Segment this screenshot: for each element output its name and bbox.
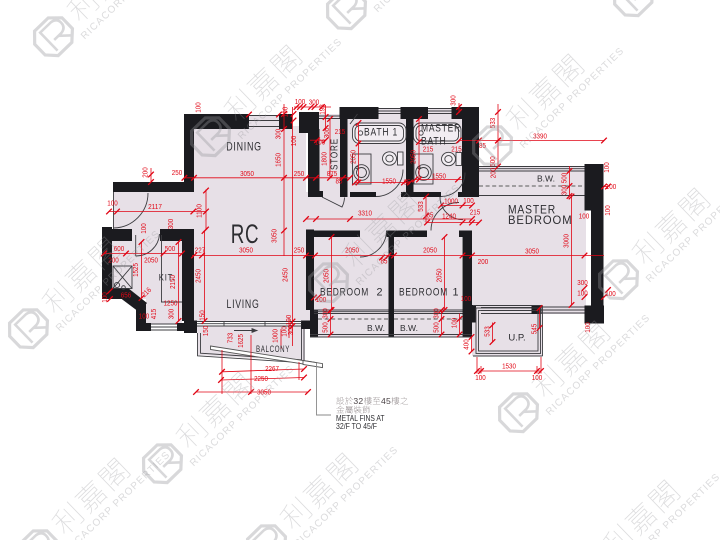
svg-text:533: 533 xyxy=(483,326,492,336)
svg-text:2050: 2050 xyxy=(349,150,358,164)
svg-text:250: 250 xyxy=(294,246,304,255)
svg-text:215: 215 xyxy=(470,208,480,217)
svg-text:656: 656 xyxy=(121,291,131,300)
svg-text:227: 227 xyxy=(195,246,205,255)
svg-text:2267: 2267 xyxy=(265,364,279,373)
svg-text:100: 100 xyxy=(295,97,305,106)
svg-text:100: 100 xyxy=(450,318,459,328)
svg-text:RC: RC xyxy=(231,219,260,249)
svg-text:400: 400 xyxy=(462,339,471,349)
svg-text:193: 193 xyxy=(318,104,327,114)
svg-text:STORE: STORE xyxy=(330,138,341,170)
svg-text:1000: 1000 xyxy=(271,329,280,343)
svg-text:250: 250 xyxy=(172,168,182,177)
svg-text:32/F TO 45/F: 32/F TO 45/F xyxy=(336,422,377,431)
svg-text:500: 500 xyxy=(560,173,569,183)
svg-text:300: 300 xyxy=(286,325,295,335)
svg-text:100: 100 xyxy=(579,212,589,221)
svg-text:300: 300 xyxy=(432,308,441,318)
svg-text:100: 100 xyxy=(461,294,471,303)
svg-text:300: 300 xyxy=(577,278,587,287)
svg-text:2050: 2050 xyxy=(409,150,418,164)
svg-text:BALCONY: BALCONY xyxy=(256,344,290,354)
svg-text:200: 200 xyxy=(489,168,498,178)
svg-text:100: 100 xyxy=(107,199,117,208)
svg-text:100: 100 xyxy=(603,205,612,215)
svg-text:MASTER: MASTER xyxy=(421,123,461,135)
svg-text:100: 100 xyxy=(284,315,293,325)
svg-text:1100: 1100 xyxy=(195,204,204,218)
svg-text:2050: 2050 xyxy=(423,246,437,255)
svg-text:300: 300 xyxy=(166,219,175,229)
svg-text:3000: 3000 xyxy=(562,234,571,248)
svg-text:2: 2 xyxy=(377,287,384,299)
svg-text:500: 500 xyxy=(165,244,175,253)
svg-text:1650: 1650 xyxy=(274,153,283,167)
svg-text:3050: 3050 xyxy=(240,169,254,178)
svg-text:3050: 3050 xyxy=(525,247,539,256)
svg-text:2250: 2250 xyxy=(254,374,268,383)
svg-text:100: 100 xyxy=(602,162,611,172)
svg-text:300: 300 xyxy=(560,185,569,195)
svg-text:150: 150 xyxy=(198,310,207,320)
svg-text:215: 215 xyxy=(335,127,345,136)
svg-text:100: 100 xyxy=(139,223,148,233)
svg-text:215: 215 xyxy=(451,145,461,154)
svg-text:85: 85 xyxy=(336,177,343,186)
svg-text:200: 200 xyxy=(478,257,488,266)
svg-text:2050: 2050 xyxy=(435,269,444,283)
svg-text:150: 150 xyxy=(201,326,210,336)
svg-text:100: 100 xyxy=(606,182,616,191)
svg-text:B.W.: B.W. xyxy=(367,323,385,333)
svg-text:45: 45 xyxy=(381,396,391,406)
svg-text:100: 100 xyxy=(194,102,203,112)
svg-text:415: 415 xyxy=(149,309,158,319)
svg-text:500: 500 xyxy=(321,322,330,332)
svg-text:2117: 2117 xyxy=(148,202,162,211)
svg-text:2450: 2450 xyxy=(194,269,203,283)
svg-text:300: 300 xyxy=(322,128,331,138)
svg-text:1530: 1530 xyxy=(502,362,516,371)
svg-text:BATH 1: BATH 1 xyxy=(364,127,398,139)
svg-text:1800: 1800 xyxy=(320,152,329,166)
svg-text:1550: 1550 xyxy=(382,177,396,186)
svg-text:300: 300 xyxy=(449,95,458,105)
svg-text:1250: 1250 xyxy=(164,299,178,308)
svg-text:533: 533 xyxy=(416,201,425,211)
svg-text:BEDROOM: BEDROOM xyxy=(508,213,573,227)
svg-text:B.W.: B.W. xyxy=(537,174,555,184)
svg-text:300: 300 xyxy=(167,309,176,319)
svg-text:300: 300 xyxy=(274,129,283,139)
svg-text:BATH: BATH xyxy=(421,136,447,148)
svg-text:545: 545 xyxy=(530,324,539,334)
svg-text:2450: 2450 xyxy=(281,268,290,282)
svg-text:100: 100 xyxy=(139,312,149,321)
svg-text:1625: 1625 xyxy=(236,334,245,348)
svg-text:KIT.: KIT. xyxy=(159,273,176,284)
svg-text:2050: 2050 xyxy=(144,256,158,265)
svg-text:200: 200 xyxy=(141,167,150,177)
svg-text:100: 100 xyxy=(289,136,298,146)
svg-text:1240: 1240 xyxy=(442,212,456,221)
svg-text:733: 733 xyxy=(226,333,235,343)
svg-text:500: 500 xyxy=(432,322,441,332)
svg-text:B.W.: B.W. xyxy=(400,323,418,333)
svg-text:100: 100 xyxy=(463,196,473,205)
svg-text:3310: 3310 xyxy=(358,209,372,218)
svg-text:3050: 3050 xyxy=(270,229,279,243)
svg-text:2050: 2050 xyxy=(345,246,359,255)
svg-text:U.P.: U.P. xyxy=(508,333,525,344)
svg-text:85: 85 xyxy=(404,178,411,187)
svg-text:100: 100 xyxy=(281,107,290,117)
svg-text:32: 32 xyxy=(353,396,363,406)
svg-text:100: 100 xyxy=(475,373,485,382)
svg-text:100: 100 xyxy=(577,289,587,298)
svg-text:BEDROOM: BEDROOM xyxy=(399,287,448,299)
svg-text:LIVING: LIVING xyxy=(227,297,260,311)
svg-text:300: 300 xyxy=(321,308,330,318)
svg-text:1550: 1550 xyxy=(432,172,446,181)
svg-text:1: 1 xyxy=(453,287,460,299)
svg-text:250: 250 xyxy=(294,169,304,178)
